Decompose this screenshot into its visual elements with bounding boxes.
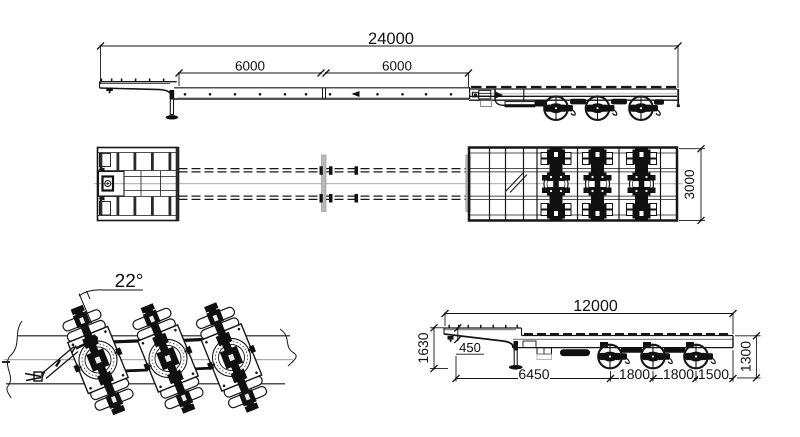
svg-text:1300: 1300 bbox=[738, 341, 754, 372]
svg-text:1800: 1800 bbox=[619, 366, 650, 382]
svg-text:1800: 1800 bbox=[663, 366, 694, 382]
svg-text:1630: 1630 bbox=[415, 332, 431, 363]
svg-text:3000: 3000 bbox=[682, 169, 697, 199]
svg-text:6000: 6000 bbox=[235, 59, 265, 74]
svg-text:450: 450 bbox=[459, 340, 481, 355]
svg-text:1500: 1500 bbox=[698, 366, 729, 382]
svg-text:22°: 22° bbox=[115, 271, 144, 292]
svg-text:12000: 12000 bbox=[573, 298, 618, 315]
svg-text:24000: 24000 bbox=[368, 30, 414, 48]
svg-text:6450: 6450 bbox=[518, 366, 549, 382]
svg-text:6000: 6000 bbox=[382, 59, 412, 74]
